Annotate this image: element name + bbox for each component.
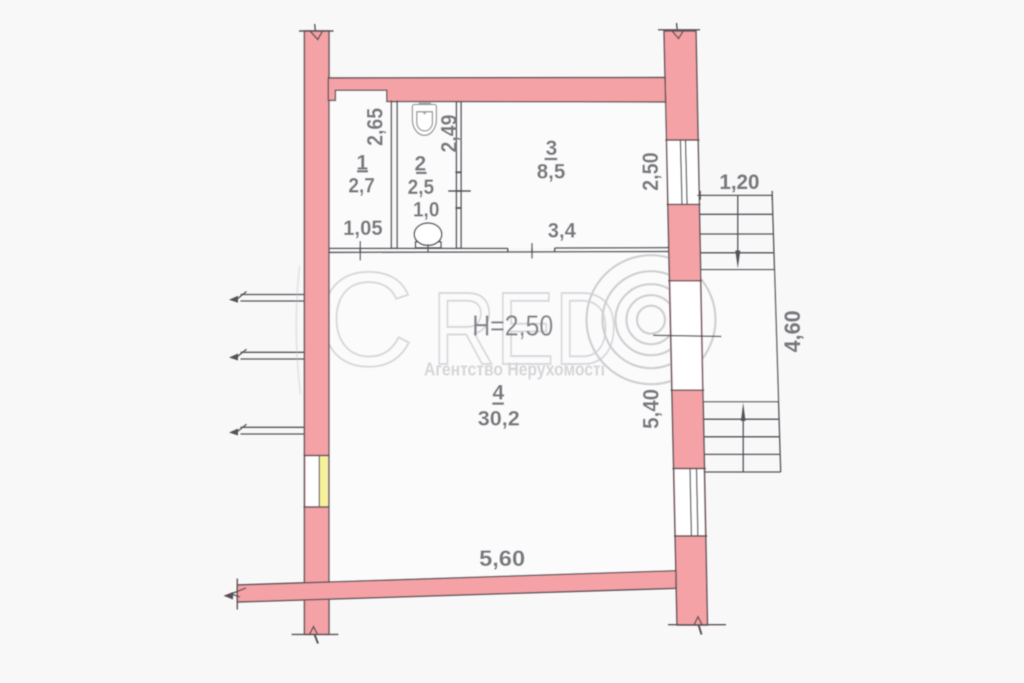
svg-text:1,05: 1,05 [343, 217, 383, 240]
svg-text:30,2: 30,2 [478, 408, 520, 431]
svg-text:H=2,50: H=2,50 [472, 311, 553, 343]
svg-text:3,4: 3,4 [548, 220, 576, 243]
svg-text:2,49: 2,49 [436, 115, 461, 153]
svg-text:1,0: 1,0 [413, 198, 440, 221]
svg-text:1,20: 1,20 [719, 171, 759, 194]
svg-text:Агентство Нерухомості: Агентство Нерухомості [424, 360, 605, 380]
svg-text:3: 3 [546, 137, 558, 160]
svg-text:5,60: 5,60 [479, 546, 525, 571]
svg-text:2,65: 2,65 [362, 108, 387, 146]
svg-text:8,5: 8,5 [537, 160, 566, 183]
svg-text:4,60: 4,60 [780, 310, 805, 352]
svg-text:2,50: 2,50 [638, 152, 663, 191]
svg-text:2,5: 2,5 [408, 176, 435, 199]
svg-text:2,7: 2,7 [348, 174, 375, 197]
svg-text:5,40: 5,40 [638, 389, 663, 429]
svg-text:4: 4 [493, 381, 505, 404]
svg-text:C: C [317, 246, 414, 395]
